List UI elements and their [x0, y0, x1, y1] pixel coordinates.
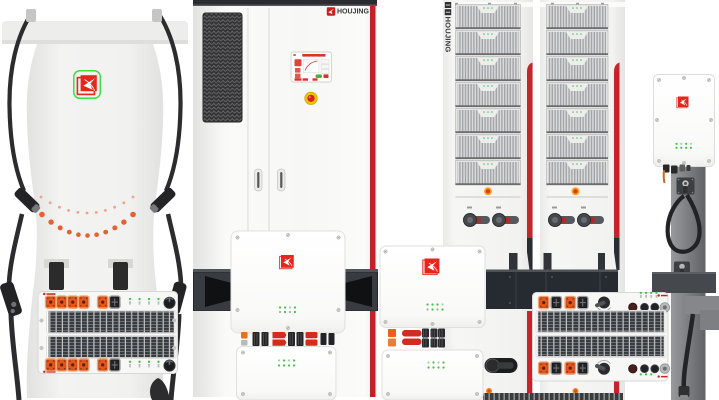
svg-text:HOUJING: HOUJING	[337, 8, 369, 15]
svg-text:HOUJING: HOUJING	[444, 17, 453, 53]
